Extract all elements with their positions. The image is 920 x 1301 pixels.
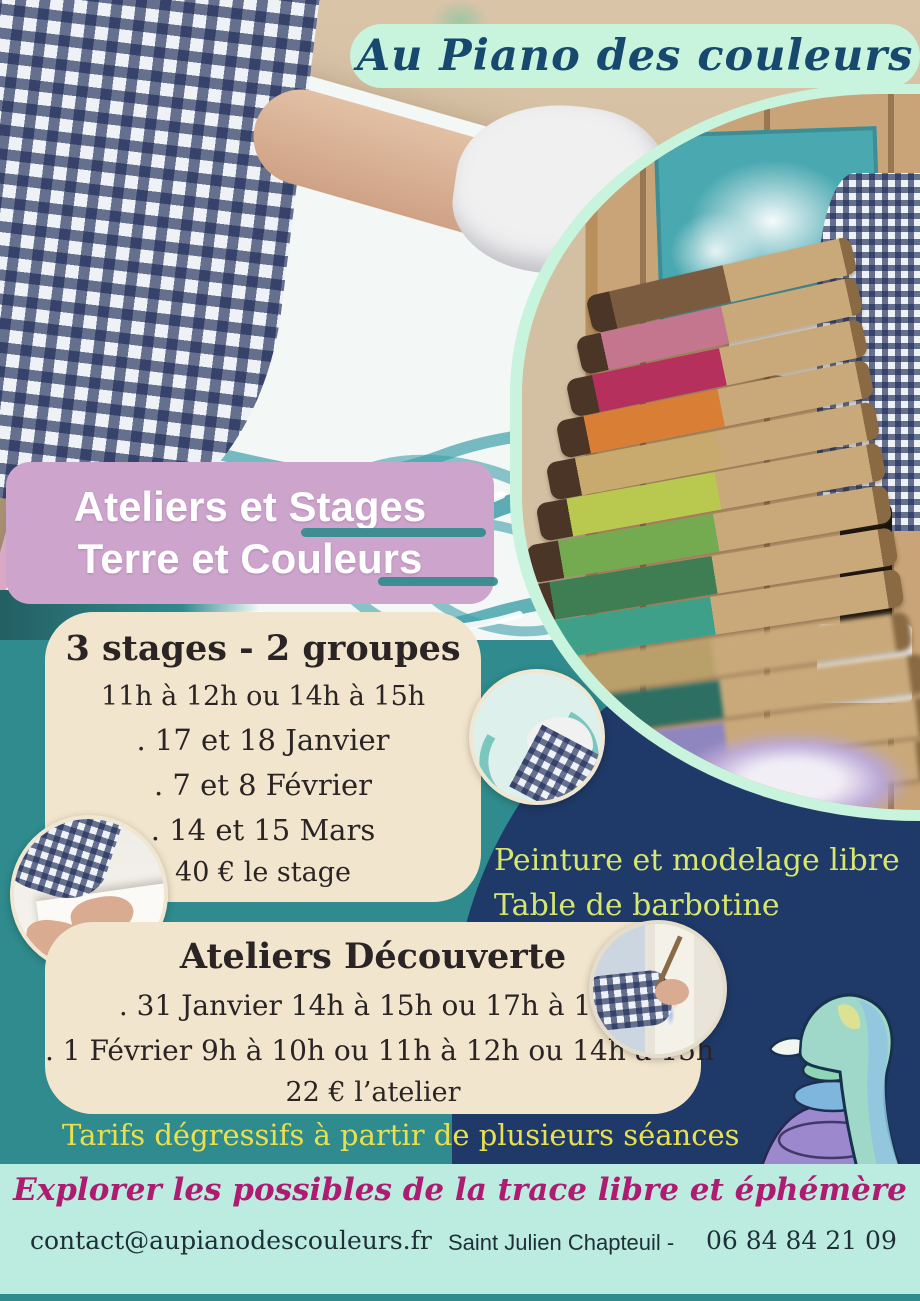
decouverte-session: . 1 Février 9h à 10h ou 11h à 12h ou 14h… bbox=[45, 1034, 701, 1067]
brush-streak bbox=[301, 528, 486, 537]
stages-heading: 3 stages - 2 groupes bbox=[45, 628, 481, 669]
brush-streak bbox=[378, 577, 498, 586]
bottom-edge-strip bbox=[0, 1294, 920, 1301]
footer: Explorer les possibles de la trace libre… bbox=[0, 1164, 920, 1294]
decouverte-price: 22 € l’atelier bbox=[45, 1077, 701, 1108]
watercolor-sketch bbox=[738, 972, 920, 1182]
activities-line-1: Peinture et modelage libre bbox=[494, 838, 900, 883]
page-title: Au Piano des couleurs bbox=[357, 31, 914, 81]
contact-email: contact@aupianodescouleurs.fr bbox=[30, 1226, 432, 1255]
circle-photo-painting-hand bbox=[469, 669, 605, 805]
tariff-note: Tarifs dégressifs à partir de plusieurs … bbox=[62, 1118, 772, 1152]
headline-banner: Ateliers et Stages Terre et Couleurs bbox=[6, 462, 494, 604]
activities-note: Peinture et modelage libre Table de barb… bbox=[494, 838, 900, 928]
stages-date: . 17 et 18 Janvier bbox=[45, 723, 481, 757]
contact-row: contact@aupianodescouleurs.fr Saint Juli… bbox=[0, 1222, 920, 1262]
title-banner: Au Piano des couleurs bbox=[350, 24, 920, 88]
child-hand bbox=[655, 979, 689, 1005]
contact-phone: 06 84 84 21 09 bbox=[706, 1226, 897, 1255]
headline-line-2: Terre et Couleurs bbox=[78, 535, 423, 583]
headline-line-1: Ateliers et Stages bbox=[74, 483, 427, 531]
circle-photo-easel-child bbox=[589, 920, 727, 1058]
stages-times: 11h à 12h ou 14h à 15h bbox=[45, 681, 481, 712]
stages-date: . 7 et 8 Février bbox=[45, 768, 481, 802]
poster: Au Piano des couleurs Ateliers et Stages… bbox=[0, 0, 920, 1301]
contact-location: Saint Julien Chapteuil - bbox=[448, 1230, 674, 1256]
tagline: Explorer les possibles de la trace libre… bbox=[0, 1172, 920, 1208]
